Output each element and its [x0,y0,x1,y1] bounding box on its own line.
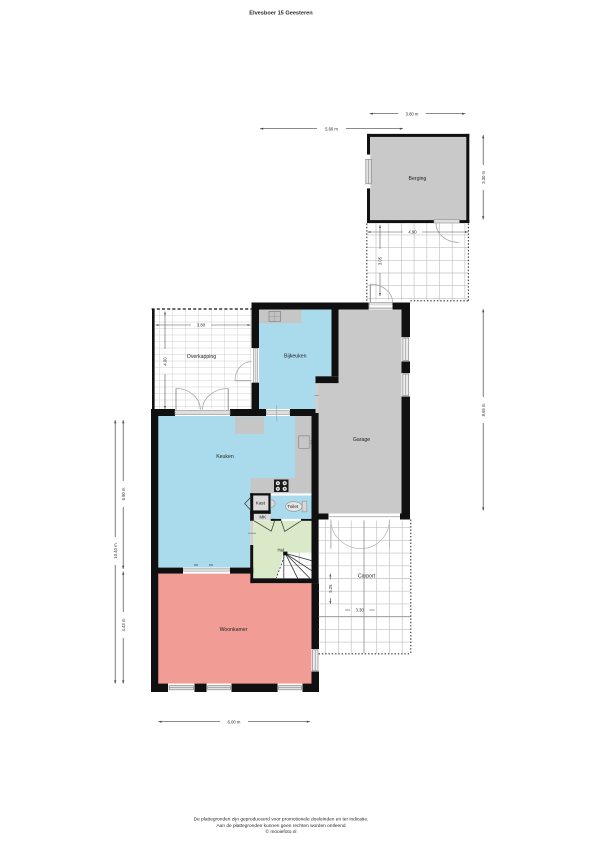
svg-text:Garage: Garage [353,437,370,443]
svg-text:Overkapping: Overkapping [187,354,217,360]
svg-text:3.80: 3.80 [197,323,206,328]
svg-text:6.00 m: 6.00 m [228,719,241,724]
svg-text:4.00: 4.00 [163,357,168,366]
svg-text:5.90 m: 5.90 m [121,487,126,500]
svg-text:Woonkamer: Woonkamer [220,627,248,633]
svg-text:Toilet: Toilet [287,504,298,509]
svg-text:4.43 m: 4.43 m [121,618,126,631]
svg-text:8.65 m: 8.65 m [481,403,486,416]
svg-text:Kast: Kast [256,501,266,506]
svg-text:3.05: 3.05 [378,256,383,265]
svg-text:5.60 m: 5.60 m [325,126,338,131]
svg-text:5.25: 5.25 [328,584,333,593]
svg-text:Aan de plattegronden kunnen ge: Aan de plattegronden kunnen geen rechten… [216,823,345,829]
svg-text:Keuken: Keuken [216,454,234,460]
svg-text:3.30: 3.30 [356,608,365,613]
svg-text:Hal: Hal [277,547,283,552]
svg-text:Berging: Berging [409,176,427,182]
svg-text:De plattegronden zijn geproduc: De plattegronden zijn geproduceerd voor … [194,817,369,823]
svg-text:3.30 m: 3.30 m [481,170,486,183]
svg-text:Elvesboer 15 Geesteren: Elvesboer 15 Geesteren [249,11,313,17]
svg-text:4.90: 4.90 [408,230,417,235]
svg-text:MK: MK [259,515,267,520]
svg-text:Bijkeuken: Bijkeuken [284,354,307,360]
svg-text:Carport: Carport [358,574,376,580]
svg-text:10.40 m: 10.40 m [113,543,118,559]
svg-text:© mooiefoto.nl: © mooiefoto.nl [266,828,297,835]
svg-text:3.80 m: 3.80 m [406,111,419,116]
